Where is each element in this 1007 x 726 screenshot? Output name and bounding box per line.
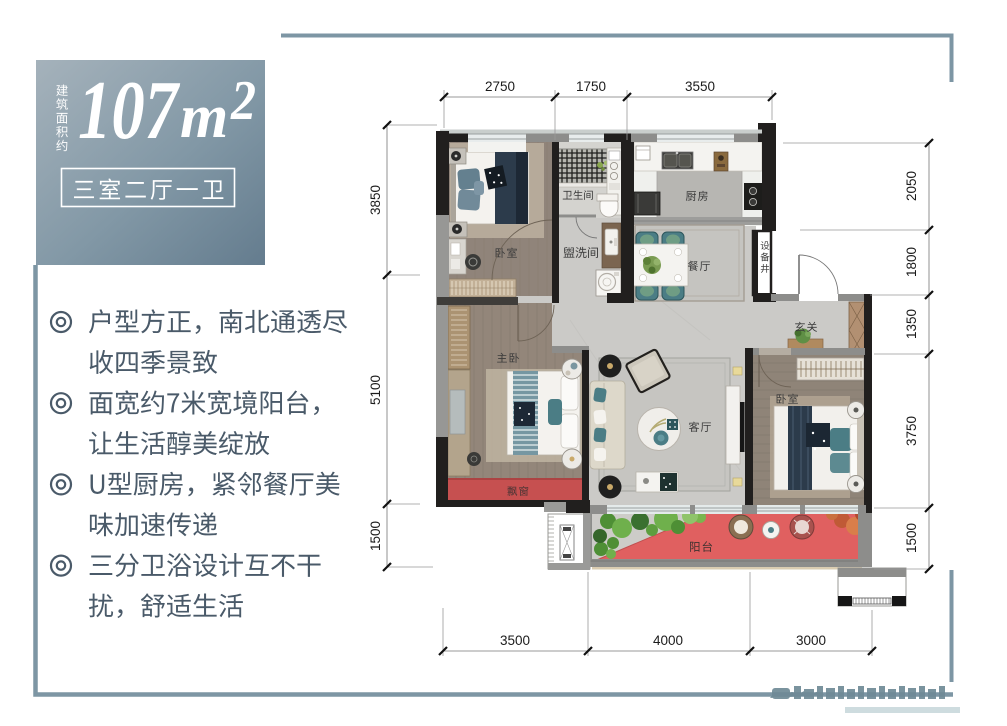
svg-text:2: 2 <box>230 70 256 132</box>
svg-text:3000: 3000 <box>796 633 826 648</box>
svg-text:3750: 3750 <box>904 416 919 446</box>
svg-text:3850: 3850 <box>368 185 383 215</box>
svg-text:m: m <box>180 83 228 151</box>
svg-text:1500: 1500 <box>368 521 383 551</box>
svg-text:107: 107 <box>78 64 180 157</box>
svg-text:2750: 2750 <box>485 79 515 94</box>
svg-text:3550: 3550 <box>685 79 715 94</box>
svg-text:4000: 4000 <box>653 633 683 648</box>
svg-text:1750: 1750 <box>576 79 606 94</box>
svg-text:1800: 1800 <box>904 247 919 277</box>
svg-text:1500: 1500 <box>904 523 919 553</box>
svg-text:1350: 1350 <box>904 309 919 339</box>
svg-text:2050: 2050 <box>904 171 919 201</box>
svg-text:5100: 5100 <box>368 375 383 405</box>
svg-text:3500: 3500 <box>500 633 530 648</box>
